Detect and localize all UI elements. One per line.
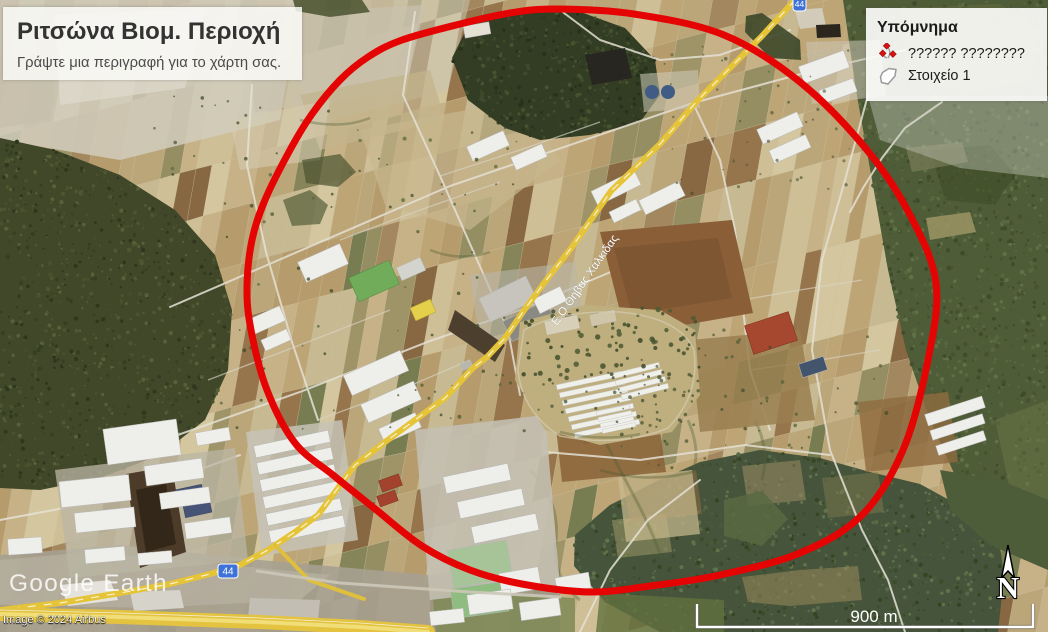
svg-text:N: N xyxy=(997,570,1019,604)
svg-text:44: 44 xyxy=(795,0,805,9)
svg-text:900 m: 900 m xyxy=(850,607,897,626)
svg-text:44: 44 xyxy=(222,567,234,578)
